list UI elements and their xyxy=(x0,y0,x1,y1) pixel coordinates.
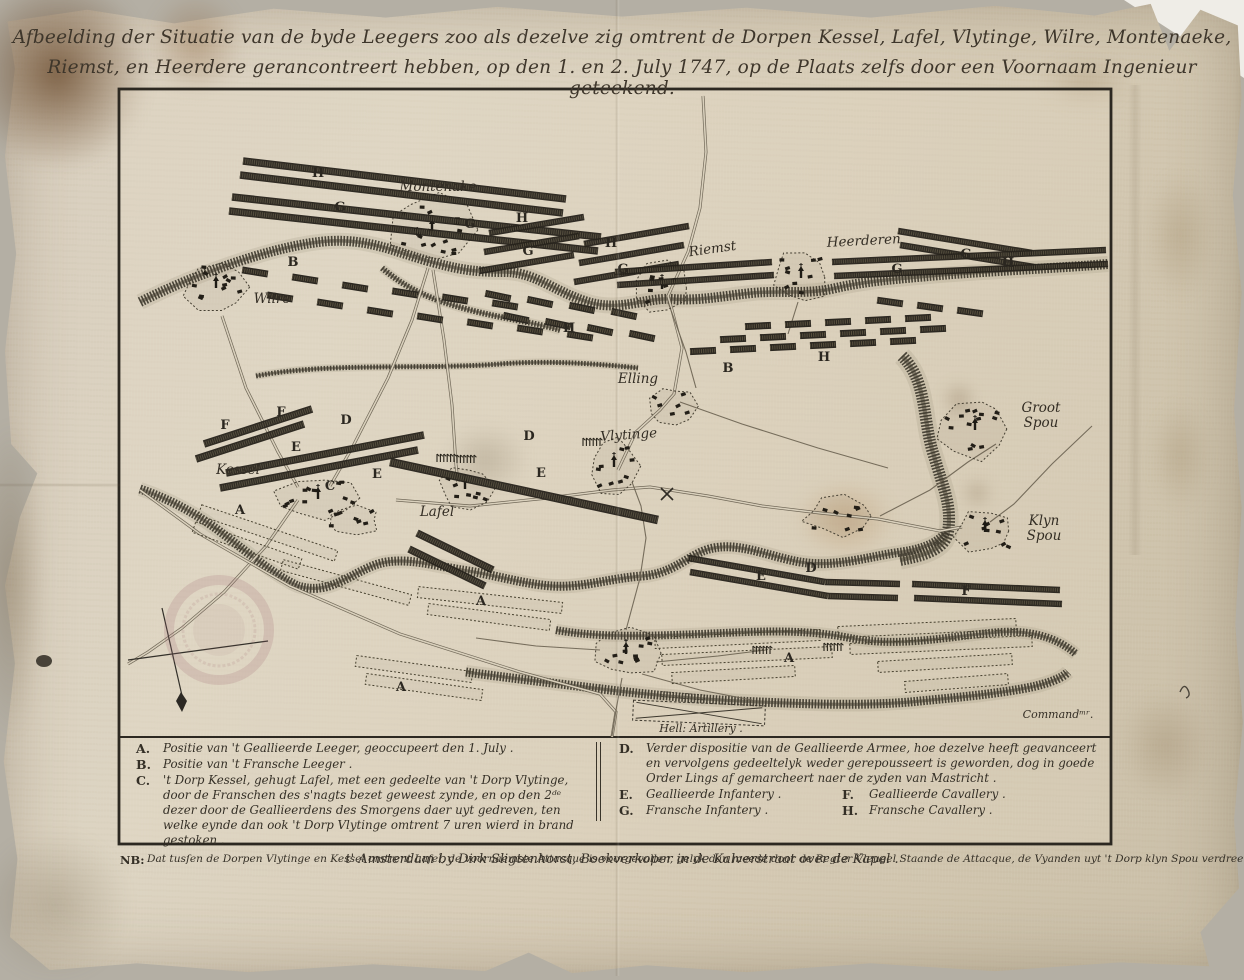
unit-label-h-11: H xyxy=(1002,256,1014,271)
place-label-kessel: Kessel xyxy=(215,462,260,478)
unit-label-h-13: H xyxy=(818,350,830,365)
legend-item-a: A. Positie van 't Geallieerde Leeger, ge… xyxy=(136,741,596,756)
unit-label-h-8: H xyxy=(563,321,575,336)
legend-key: B. xyxy=(136,757,163,772)
unit-label-g-10: G xyxy=(891,262,902,277)
map-title-line-2: Riemst, en Heerdere gerancontreert hebbe… xyxy=(0,57,1244,99)
place-label-montenake: Montenake xyxy=(399,179,477,195)
unit-label-b-12: B xyxy=(723,361,734,376)
unit-label-a-23: A xyxy=(475,594,487,609)
legend-key: A. xyxy=(136,741,163,756)
unit-label-g-3: G xyxy=(464,217,475,232)
legend-key: F. xyxy=(842,787,869,802)
legend-text: Geallieerde Cavallery . xyxy=(869,787,1006,802)
legend-right-column: D. Verder dispositie van de Geallieerde … xyxy=(601,741,1110,849)
imprint: t' Amsterdam by Dirk Sligtenhorst, Boekv… xyxy=(0,852,1244,867)
map-title-line-1: Afbeelding der Situatie van de byde Leeg… xyxy=(0,27,1244,48)
unit-label-d-27: D xyxy=(805,561,816,576)
legend-text: Verder dispositie van de Geallieerde Arm… xyxy=(646,741,1110,786)
legend-item-b: B. Positie van 't Fransche Leeger . xyxy=(136,757,596,772)
legend-item-e-f: E. Geallieerde Infantery . F. Geallieerd… xyxy=(619,787,1110,802)
legend: A. Positie van 't Geallieerde Leeger, ge… xyxy=(120,741,1110,867)
legend-text: Fransche Cavallery . xyxy=(869,803,993,818)
place-label-wilre: Wilre xyxy=(254,291,291,307)
unit-label-c-21: C xyxy=(325,479,335,494)
place-label-groot-spou: GrootSpou xyxy=(1022,400,1061,431)
unit-label-h-4: H xyxy=(516,211,528,226)
legend-text: 't Dorp Kessel, gehugt Lafel, met een ge… xyxy=(163,773,596,848)
unit-label-b-2: B xyxy=(288,255,299,270)
legend-key: C. xyxy=(136,773,163,848)
unit-label-g-7: G xyxy=(617,262,628,277)
unit-label-a-25: A xyxy=(783,651,795,666)
unit-label-f-28: F xyxy=(961,584,971,599)
unit-label-e-19: E xyxy=(372,467,382,482)
unit-label-h-6: H xyxy=(605,236,617,251)
unit-label-g-5: G xyxy=(522,244,533,259)
legend-item-d: D. Verder dispositie van de Geallieerde … xyxy=(619,741,1110,786)
legend-item-c: C. 't Dorp Kessel, gehugt Lafel, met een… xyxy=(136,773,596,848)
legend-key: H. xyxy=(842,803,869,818)
legend-key: E. xyxy=(619,787,646,802)
legend-text: Positie van 't Geallieerde Leeger, geocc… xyxy=(163,741,513,756)
unit-label-d-18: D xyxy=(523,429,534,444)
legend-key: D. xyxy=(619,741,646,786)
antique-map-page: { "title": { "line1": "Afbeelding der Si… xyxy=(0,0,1244,976)
place-label-lafel: Lafel xyxy=(419,504,454,520)
legend-key: G. xyxy=(619,803,646,818)
unit-label-g-1: G xyxy=(334,200,345,215)
unit-label-e-26: E xyxy=(756,569,766,584)
unit-label-e-16: E xyxy=(291,440,301,455)
unit-label-d-17: D xyxy=(340,413,351,428)
place-label-commander: Commandᵐʳ. xyxy=(1023,708,1094,721)
place-label-elling: Elling xyxy=(617,371,659,387)
legend-left-column: A. Positie van 't Geallieerde Leeger, ge… xyxy=(120,741,596,849)
unit-label-a-24: A xyxy=(395,680,407,695)
unit-label-f-15: F xyxy=(276,405,286,420)
place-label-hell-artillery: Hell: Artillery . xyxy=(658,722,743,735)
place-label-klyn-spou: KlynSpou xyxy=(1027,513,1062,544)
legend-text: Geallieerde Infantery . xyxy=(646,787,842,802)
unit-label-e-20: E xyxy=(536,466,546,481)
unit-label-g-9: G xyxy=(960,247,971,262)
unit-label-a-22: A xyxy=(234,503,246,518)
unit-label-f-14: F xyxy=(220,418,230,433)
legend-text: Positie van 't Fransche Leeger . xyxy=(163,757,352,772)
legend-text: Fransche Infantery . xyxy=(646,803,842,818)
legend-item-g-h: G. Fransche Infantery . H. Fransche Cava… xyxy=(619,803,1110,818)
unit-label-h-0: H xyxy=(312,166,324,181)
